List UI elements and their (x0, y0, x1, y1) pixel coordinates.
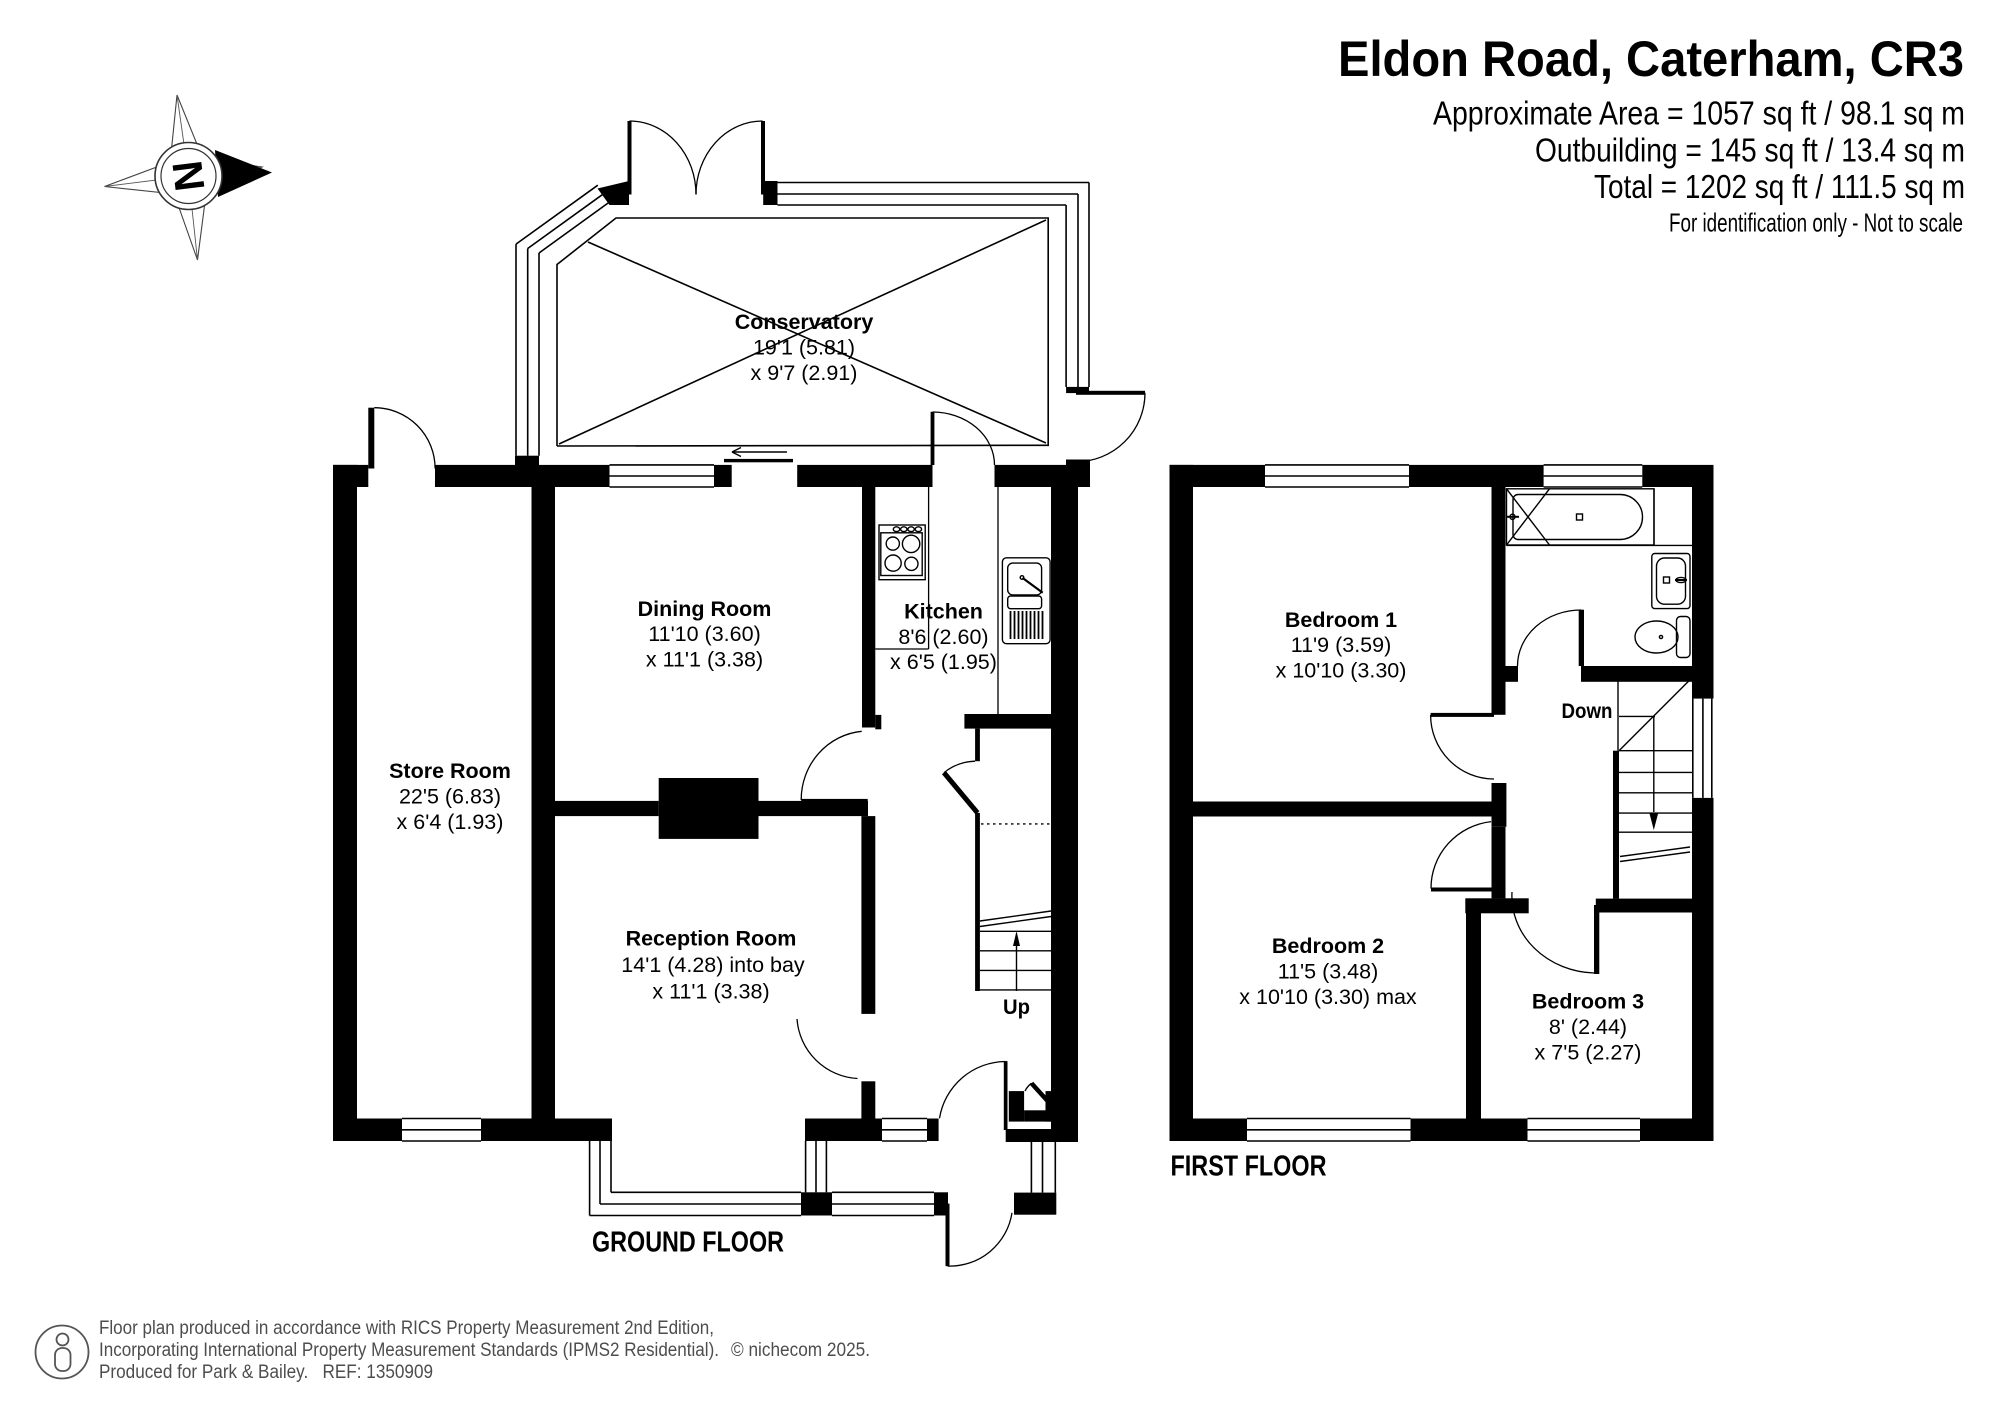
svg-text:Total = 1202 sq ft / 111.5 sq: Total = 1202 sq ft / 111.5 sq m (1594, 168, 1965, 205)
svg-text:Bedroom 1: Bedroom 1 (1285, 608, 1397, 632)
svg-text:© nichecom 2025.: © nichecom 2025. (731, 1340, 870, 1361)
svg-text:x 7'5 (2.27): x 7'5 (2.27) (1535, 1040, 1642, 1064)
svg-text:x 6'4 (1.93): x 6'4 (1.93) (397, 810, 504, 834)
svg-text:Dining Room: Dining Room (638, 597, 772, 621)
svg-text:Floor plan produced in accorda: Floor plan produced in accordance with R… (99, 1318, 714, 1339)
svg-text:8' (2.44): 8' (2.44) (1549, 1015, 1627, 1039)
svg-text:x 11'1 (3.38): x 11'1 (3.38) (652, 979, 769, 1003)
svg-text:Bedroom 3: Bedroom 3 (1532, 990, 1644, 1014)
svg-text:x 10'10 (3.30): x 10'10 (3.30) (1276, 659, 1407, 683)
svg-text:Eldon Road, Caterham, CR3: Eldon Road, Caterham, CR3 (1338, 31, 1964, 87)
svg-text:For identification only - Not: For identification only - Not to scale (1669, 207, 1963, 237)
svg-text:19'1 (5.81): 19'1 (5.81) (753, 335, 855, 359)
svg-text:Up: Up (1003, 995, 1030, 1019)
svg-text:Store Room: Store Room (389, 759, 511, 783)
svg-text:Incorporating International Pr: Incorporating International Property Mea… (99, 1340, 719, 1361)
svg-text:Approximate Area = 1057 sq ft: Approximate Area = 1057 sq ft / 98.1 sq … (1433, 95, 1965, 132)
svg-text:x 6'5 (1.95): x 6'5 (1.95) (890, 650, 997, 674)
svg-text:14'1 (4.28) into bay: 14'1 (4.28) into bay (621, 953, 805, 977)
svg-text:Conservatory: Conservatory (735, 310, 874, 334)
svg-text:Kitchen: Kitchen (904, 599, 983, 623)
svg-text:Down: Down (1562, 699, 1613, 723)
svg-text:x 9'7 (2.91): x 9'7 (2.91) (751, 361, 858, 385)
svg-text:Produced for Park & Bailey.: Produced for Park & Bailey. REF: 1350909 (99, 1362, 433, 1383)
svg-text:Bedroom 2: Bedroom 2 (1272, 934, 1384, 958)
svg-text:11'5 (3.48): 11'5 (3.48) (1278, 959, 1379, 983)
svg-text:FIRST FLOOR: FIRST FLOOR (1171, 1151, 1327, 1183)
svg-text:Outbuilding = 145 sq ft / 13.4: Outbuilding = 145 sq ft / 13.4 sq m (1535, 131, 1965, 168)
svg-text:8'6 (2.60): 8'6 (2.60) (898, 625, 988, 649)
svg-text:GROUND FLOOR: GROUND FLOOR (592, 1226, 784, 1258)
svg-text:N: N (163, 158, 213, 194)
svg-text:22'5 (6.83): 22'5 (6.83) (399, 784, 501, 808)
svg-text:x 10'10 (3.30) max: x 10'10 (3.30) max (1239, 985, 1417, 1009)
svg-text:11'10 (3.60): 11'10 (3.60) (648, 622, 760, 646)
svg-text:11'9 (3.59): 11'9 (3.59) (1291, 633, 1392, 657)
svg-text:x 11'1 (3.38): x 11'1 (3.38) (646, 648, 763, 672)
svg-text:Reception Room: Reception Room (626, 927, 797, 951)
